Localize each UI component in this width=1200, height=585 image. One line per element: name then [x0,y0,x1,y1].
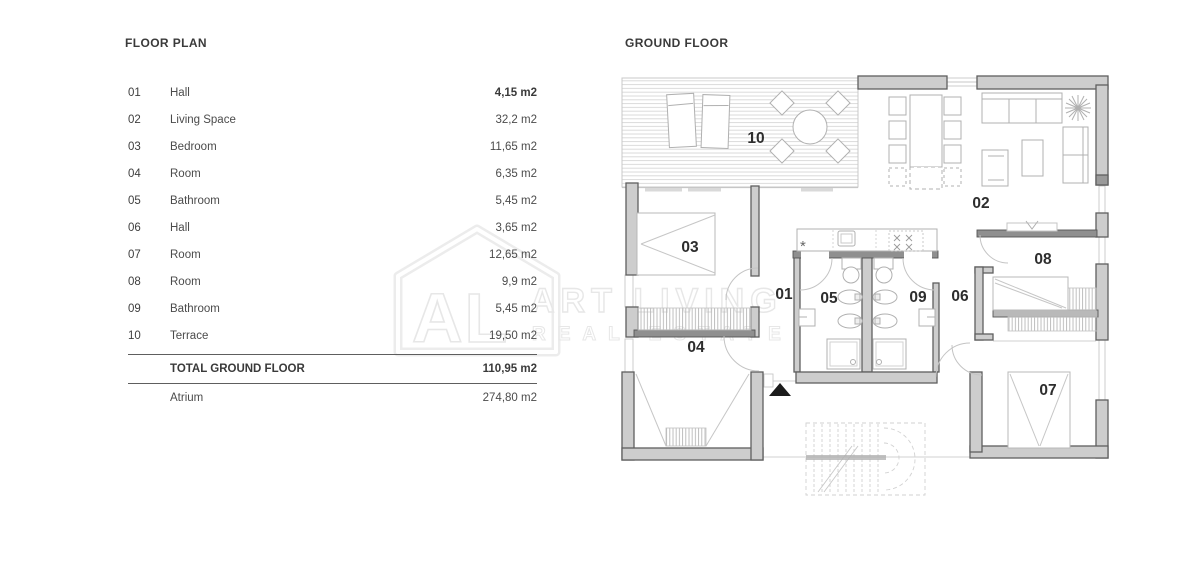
table-row: 04 Room 6,35 m2 [128,160,537,187]
door-06 [936,343,970,377]
room-area: 9,9 m2 [502,276,537,288]
room-name: Hall [170,222,495,234]
window [1099,186,1105,213]
room-name: Bathroom [170,303,495,315]
armchair [982,150,1008,186]
room-number: 09 [128,303,170,315]
chair [889,97,906,115]
room-area: 19,50 m2 [489,330,537,342]
chair [889,145,906,163]
chair [944,121,961,139]
atrium-row: Atrium 274,80 m2 [128,383,537,412]
total-area: 110,95 m2 [483,363,537,375]
table-row: 02 Living Space 32,2 m2 [128,106,537,133]
stair-rail [806,455,886,460]
bed-03 [637,213,715,275]
room08-bed-wall [993,310,1098,317]
coffee-table [1022,140,1043,176]
door-05 [800,258,832,290]
table-row: 08 Room 9,9 m2 [128,268,537,295]
table-row: 07 Room 12,65 m2 [128,241,537,268]
label-hall-06: 06 [951,288,969,305]
chair [944,145,961,163]
room-area: 5,45 m2 [495,303,537,315]
label-terrace: 10 [747,130,764,147]
room-area: 4,15 m2 [495,87,537,99]
window-sill [688,188,721,192]
room-number: 03 [128,141,170,153]
door-leaf [764,374,773,387]
living-room-furniture [889,93,1088,189]
table-row: 01 Hall 4,15 m2 [128,79,537,106]
window [625,275,633,307]
room-area: 12,65 m2 [489,249,537,261]
room-area: 5,45 m2 [495,195,537,207]
kitchen-star-symbol: * [800,238,806,255]
window [625,339,633,372]
atrium-area: 274,80 m2 [483,392,537,404]
room-area: 11,65 m2 [490,141,537,153]
room-number: 08 [128,276,170,288]
shower-drain [877,360,882,365]
wardrobe-wall [634,330,755,337]
wardrobe [638,308,751,330]
atrium-label: Atrium [170,392,483,404]
table-row: 05 Bathroom 5,45 m2 [128,187,537,214]
label-bedroom: 03 [681,239,699,256]
chair [944,168,961,186]
shower-drain [851,360,856,365]
room-name: Room [170,168,495,180]
room-name: Bedroom [170,141,490,153]
room-number: 10 [128,330,170,342]
window [1099,237,1105,264]
room-number: 05 [128,195,170,207]
room-number: 01 [128,87,170,99]
chair [889,168,906,186]
room-area: 6,35 m2 [495,168,537,180]
window-sill [645,188,682,192]
window-sill [801,188,833,192]
window [1099,340,1105,400]
dining-table-extension [910,167,942,189]
table-row: 10 Terrace 19,50 m2 [128,322,537,349]
label-room-08: 08 [1034,251,1052,268]
door-07 [952,345,982,375]
door-09 [903,258,935,290]
label-room-04: 04 [687,339,705,356]
chair [944,97,961,115]
room-area: 32,2 m2 [495,114,537,126]
staircase [806,423,925,495]
room-name: Terrace [170,330,489,342]
label-hall-01: 01 [775,286,793,303]
label-room-07: 07 [1039,382,1056,399]
room-area: 3,65 m2 [495,222,537,234]
wardrobe [666,428,706,446]
toilet [843,267,859,283]
chair [889,121,906,139]
door-08 [980,235,1008,263]
label-bathroom-05: 05 [820,290,838,307]
wardrobe [1008,317,1097,331]
ground-floor-title: GROUND FLOOR [625,36,728,50]
table-row: 06 Hall 3,65 m2 [128,214,537,241]
room-number: 04 [128,168,170,180]
plant-icon [1065,95,1091,121]
label-living-space: 02 [972,195,989,212]
dining-table [910,95,942,167]
room-name: Living Space [170,114,495,126]
label-bathroom-09: 09 [909,289,927,306]
floor-plan-title: FLOOR PLAN [125,36,207,50]
total-row: TOTAL GROUND FLOOR 110,95 m2 [128,354,537,383]
sofa [982,99,1062,123]
room-number: 07 [128,249,170,261]
kitchen: * [797,229,937,255]
room-name: Hall [170,87,495,99]
floor-plan-page: AL ART LIVING REAL ESTATE [0,0,1200,585]
toilet [876,267,892,283]
table-row: 09 Bathroom 5,45 m2 [128,295,537,322]
terrace [622,78,858,192]
total-label: TOTAL GROUND FLOOR [170,363,483,375]
wardrobe [1068,288,1096,310]
table-row: 03 Bedroom 11,65 m2 [128,133,537,160]
room-number: 02 [128,114,170,126]
room-number: 06 [128,222,170,234]
room-name: Room [170,249,489,261]
room-table: 01 Hall 4,15 m2 02 Living Space 32,2 m2 … [128,79,537,412]
sofa-back [982,93,1062,99]
bed-04 [636,374,666,446]
kitchen-counter [797,229,937,251]
room-name: Bathroom [170,195,495,207]
room-name: Room [170,276,502,288]
